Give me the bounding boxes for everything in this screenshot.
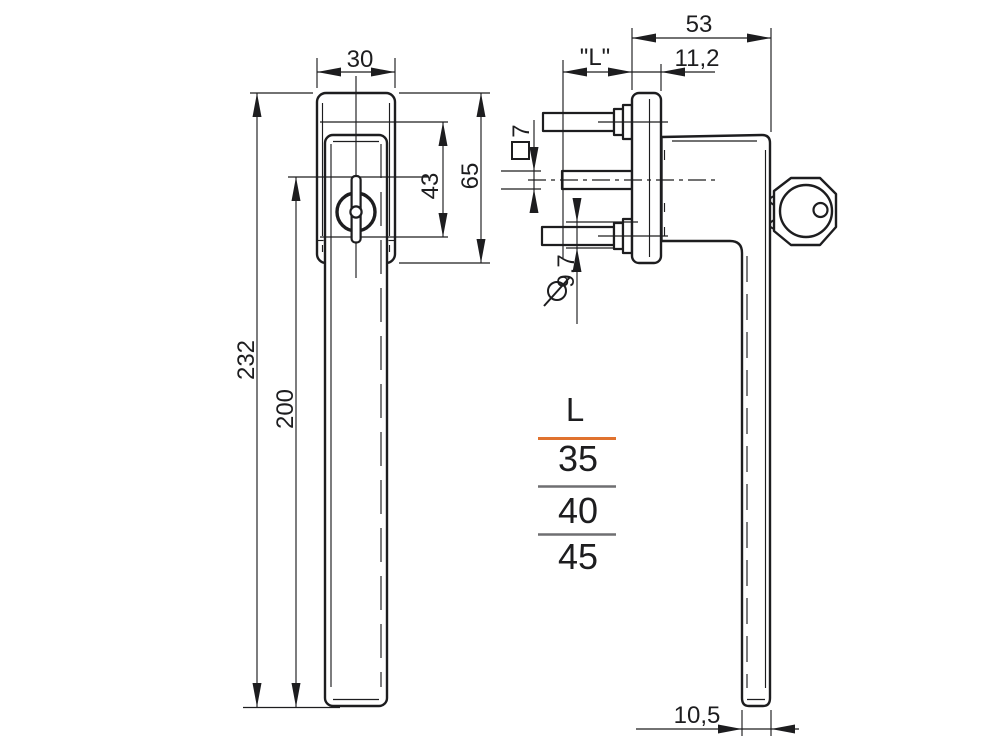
key-bow-hole bbox=[814, 203, 828, 217]
dim-lever-length-label: 200 bbox=[272, 389, 299, 429]
window-handle-technical-drawing: 30 232 200 43 bbox=[0, 0, 1000, 750]
square-symbol bbox=[512, 142, 529, 159]
key-tip bbox=[350, 206, 361, 217]
dim-screw-diameter: 9,7 bbox=[544, 198, 638, 324]
dim-depth-label: 53 bbox=[686, 11, 713, 38]
side-view: 53 "L" 11,2 7 bbox=[501, 11, 836, 736]
size-table-header: L bbox=[566, 391, 584, 428]
dim-spindle-square: 7 bbox=[501, 120, 541, 213]
size-option-45: 45 bbox=[558, 536, 598, 577]
size-option-40: 40 bbox=[558, 490, 598, 531]
dim-grip-width-label: 30 bbox=[347, 46, 374, 73]
technical-drawing-page: 30 232 200 43 bbox=[0, 0, 1000, 750]
handle-lever-side bbox=[662, 135, 771, 706]
dim-spindle-square-label: 7 bbox=[508, 124, 535, 137]
dim-lever-thickness: 10,5 bbox=[636, 702, 799, 736]
mounting-flange bbox=[632, 93, 661, 263]
key-side bbox=[770, 178, 837, 245]
dim-screw-spacing-label: 43 bbox=[417, 173, 444, 200]
dim-rosette-height-label: 65 bbox=[457, 163, 484, 190]
dim-spindle-length-label: "L" bbox=[580, 44, 610, 71]
front-view: 30 232 200 43 bbox=[233, 46, 490, 708]
dim-total-length-label: 232 bbox=[233, 340, 260, 380]
dim-screw-diameter-label: 9,7 bbox=[553, 254, 580, 287]
size-option-35: 35 bbox=[558, 438, 598, 479]
dim-lever-thickness-label: 10,5 bbox=[674, 702, 721, 729]
spindle-size-table: L 35 40 45 bbox=[538, 391, 616, 577]
dim-flange-offset-label: 11,2 bbox=[675, 45, 720, 72]
